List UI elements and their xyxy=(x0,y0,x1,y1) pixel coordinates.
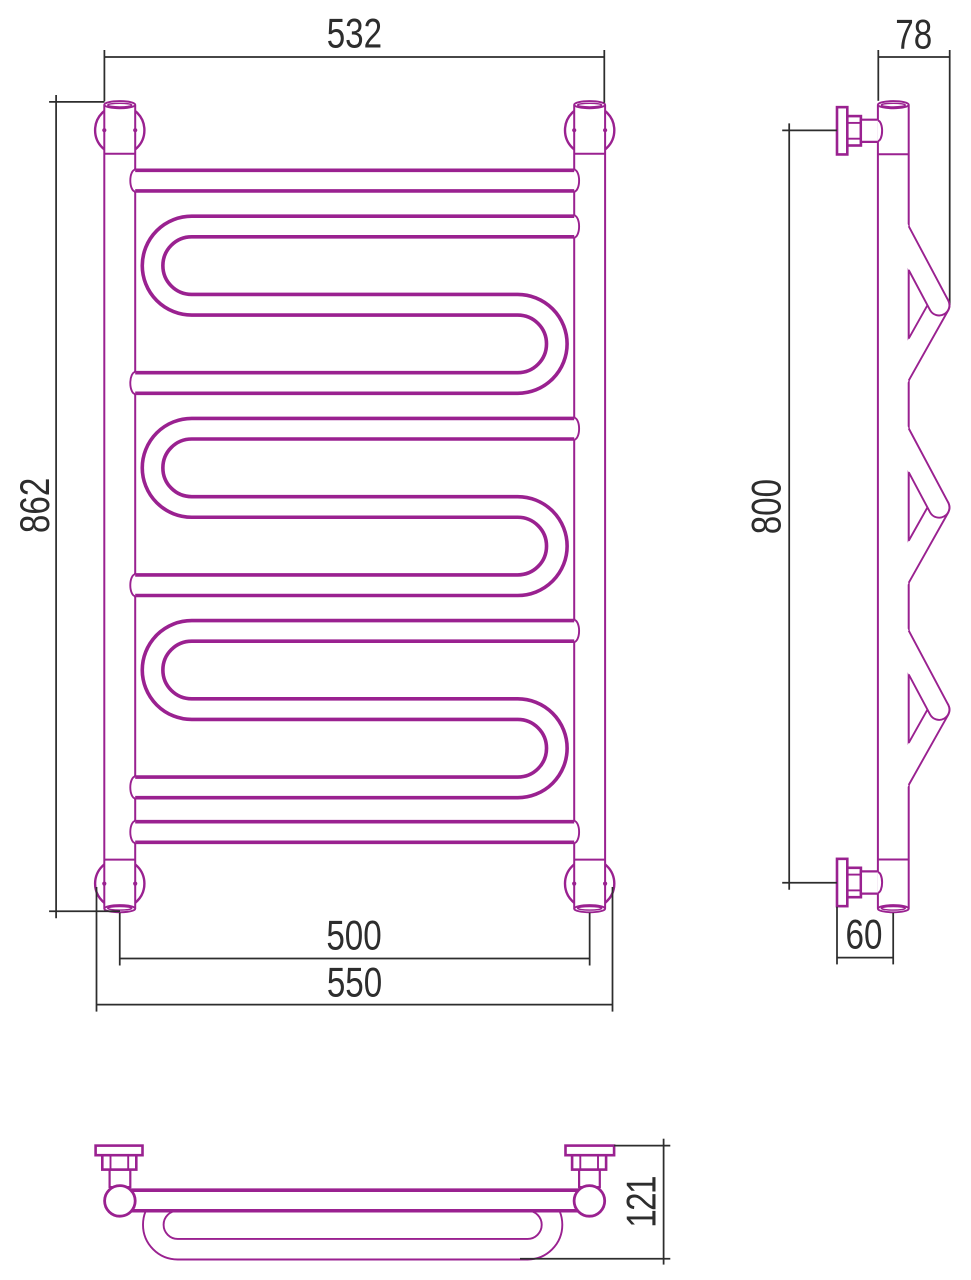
svg-text:121: 121 xyxy=(618,1176,664,1227)
svg-text:800: 800 xyxy=(743,479,789,534)
svg-text:60: 60 xyxy=(846,911,883,957)
svg-text:78: 78 xyxy=(895,11,932,57)
svg-text:532: 532 xyxy=(327,10,382,56)
svg-text:862: 862 xyxy=(12,478,58,533)
svg-text:550: 550 xyxy=(327,959,382,1005)
svg-text:500: 500 xyxy=(326,912,381,958)
